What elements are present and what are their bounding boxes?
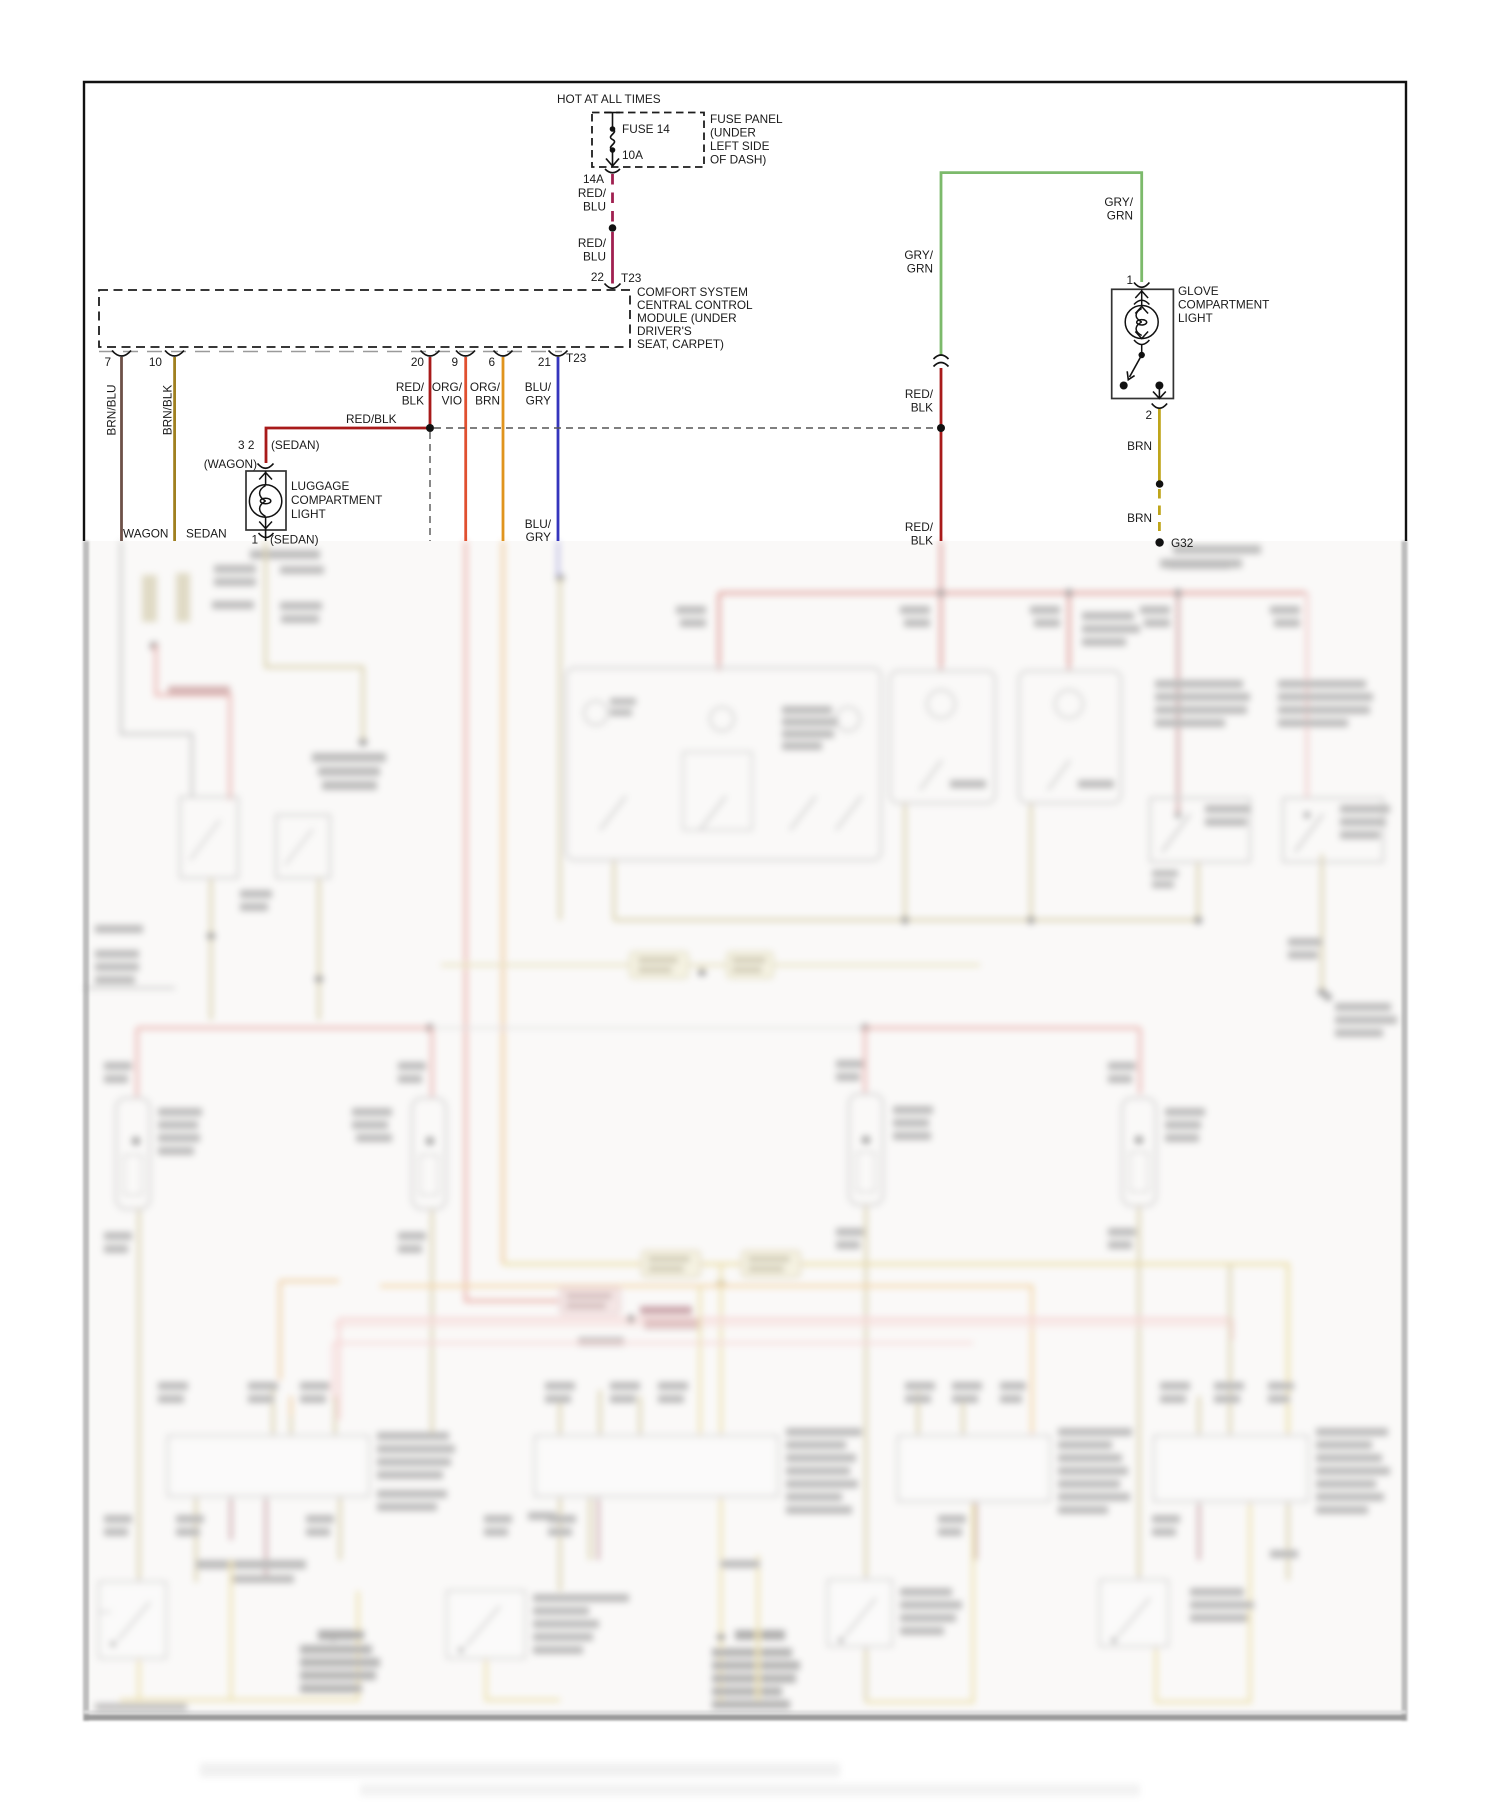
svg-text:20: 20 xyxy=(411,355,425,369)
svg-text:GRY/: GRY/ xyxy=(904,248,933,262)
svg-text:GRN: GRN xyxy=(907,262,933,276)
svg-text:LUGGAGE: LUGGAGE xyxy=(291,479,349,493)
svg-text:GRY/: GRY/ xyxy=(1104,195,1133,209)
svg-text:(WAGON): (WAGON) xyxy=(204,457,257,471)
svg-text:1: 1 xyxy=(251,533,258,547)
svg-text:(SEDAN): (SEDAN) xyxy=(271,438,320,452)
svg-text:BRN: BRN xyxy=(1127,439,1152,453)
svg-text:SEDAN: SEDAN xyxy=(186,527,227,541)
svg-text:MODULE (UNDER: MODULE (UNDER xyxy=(637,311,737,325)
svg-text:SEAT, CARPET): SEAT, CARPET) xyxy=(637,337,724,351)
svg-text:9: 9 xyxy=(451,355,458,369)
svg-text:CENTRAL CONTROL: CENTRAL CONTROL xyxy=(637,298,753,312)
svg-text:7: 7 xyxy=(104,355,111,369)
svg-text:VIO: VIO xyxy=(442,394,462,408)
svg-text:10A: 10A xyxy=(622,148,643,162)
svg-text:G32: G32 xyxy=(1171,536,1193,550)
svg-text:RED/: RED/ xyxy=(905,520,934,534)
svg-text:BLU/: BLU/ xyxy=(525,380,552,394)
svg-text:(SEDAN): (SEDAN) xyxy=(270,533,319,547)
svg-text:RED/: RED/ xyxy=(578,236,607,250)
svg-text:21: 21 xyxy=(538,355,551,369)
svg-text:LIGHT: LIGHT xyxy=(1178,311,1213,325)
svg-text:BLU/: BLU/ xyxy=(525,517,552,531)
svg-text:LIGHT: LIGHT xyxy=(291,507,326,521)
svg-text:ORG/: ORG/ xyxy=(470,380,501,394)
svg-text:GLOVE: GLOVE xyxy=(1178,284,1219,298)
svg-text:BLU: BLU xyxy=(583,250,606,264)
svg-text:6: 6 xyxy=(488,355,495,369)
svg-text:RED/: RED/ xyxy=(905,387,934,401)
svg-text:2: 2 xyxy=(1145,408,1152,422)
svg-text:BRN: BRN xyxy=(475,394,500,408)
svg-text:GRY: GRY xyxy=(526,394,551,408)
svg-text:DRIVER'S: DRIVER'S xyxy=(637,324,692,338)
svg-text:BLK: BLK xyxy=(911,534,933,548)
svg-text:1: 1 xyxy=(1126,273,1133,287)
svg-text:T23: T23 xyxy=(566,351,587,365)
svg-text:COMFORT SYSTEM: COMFORT SYSTEM xyxy=(637,285,748,299)
svg-text:BRN/BLK: BRN/BLK xyxy=(161,385,175,436)
svg-text:OF DASH): OF DASH) xyxy=(710,153,766,167)
svg-text:COMPARTMENT: COMPARTMENT xyxy=(291,493,382,507)
svg-text:FUSE 14: FUSE 14 xyxy=(622,122,670,136)
svg-text:T23: T23 xyxy=(621,271,642,285)
svg-text:RED/: RED/ xyxy=(578,186,607,200)
svg-text:BRN: BRN xyxy=(1127,511,1152,525)
svg-text:RED/BLK: RED/BLK xyxy=(346,412,397,426)
svg-text:GRY: GRY xyxy=(526,530,551,544)
svg-text:BLK: BLK xyxy=(402,394,424,408)
svg-text:10: 10 xyxy=(149,355,163,369)
svg-text:WAGON: WAGON xyxy=(123,527,168,541)
svg-text:LEFT SIDE: LEFT SIDE xyxy=(710,139,770,153)
svg-text:HOT AT ALL TIMES: HOT AT ALL TIMES xyxy=(557,92,661,106)
svg-text:FUSE PANEL: FUSE PANEL xyxy=(710,112,783,126)
svg-text:ORG/: ORG/ xyxy=(432,380,463,394)
svg-text:3 2: 3 2 xyxy=(238,438,254,452)
svg-text:GRN: GRN xyxy=(1107,209,1133,223)
svg-text:(UNDER: (UNDER xyxy=(710,126,756,140)
svg-text:RED/: RED/ xyxy=(396,380,425,394)
svg-text:BLU: BLU xyxy=(583,200,606,214)
svg-text:BRN/BLU: BRN/BLU xyxy=(105,384,119,435)
svg-text:BLK: BLK xyxy=(911,401,933,415)
svg-text:COMPARTMENT: COMPARTMENT xyxy=(1178,298,1269,312)
svg-text:14A: 14A xyxy=(583,172,604,186)
svg-text:22: 22 xyxy=(591,270,604,284)
